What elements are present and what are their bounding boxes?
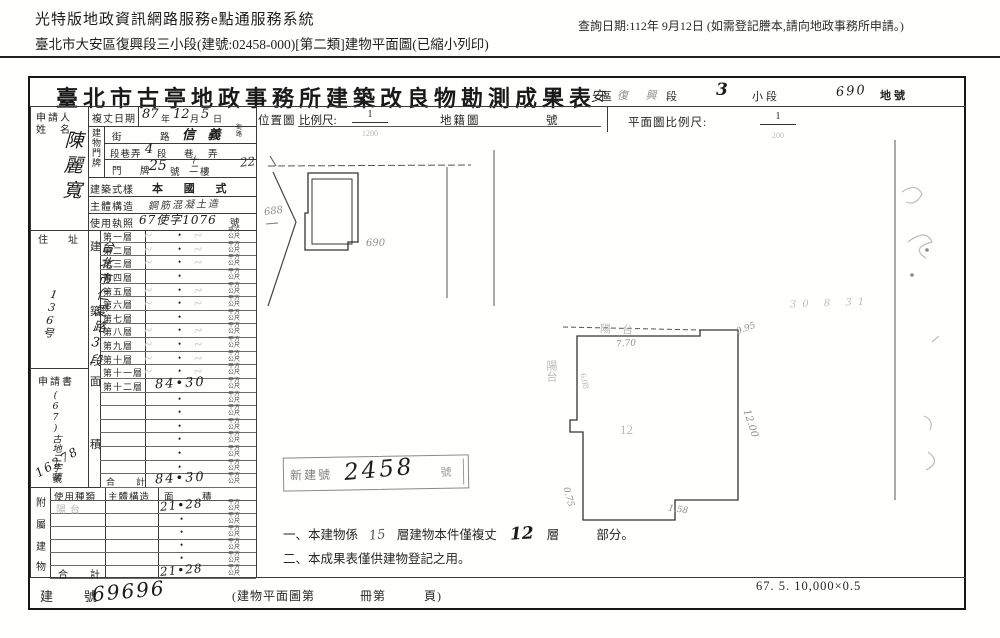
fraction-bar xyxy=(760,124,796,125)
unit-sqm: 公尺 xyxy=(228,426,240,432)
plate-door-label-a: 門 xyxy=(112,163,122,177)
unit-sqm: 公尺 xyxy=(228,533,240,539)
unit-sqm: 公尺 xyxy=(228,453,240,459)
grid-line xyxy=(256,106,257,577)
unit-sqm: 公尺 xyxy=(228,371,240,377)
grid-line xyxy=(88,126,256,127)
plan-dim-top: 7.70 xyxy=(616,338,637,349)
land-district-label: 區 xyxy=(601,88,612,104)
annex-row: •平方公尺 xyxy=(50,526,256,540)
land-subsection-label: 小段 xyxy=(752,88,780,104)
location-map-scale-fraction: 1 1200 xyxy=(352,104,388,141)
floor-area-row: 合 計84•30平方公尺 xyxy=(100,473,256,488)
scale-numerator: 1 xyxy=(776,111,781,122)
scanned-document-page: 光特版地政資訊網路服務e點通服務系統 查詢日期:112年 9月12日 (如需登記… xyxy=(0,0,1000,638)
unit-sqm: 公尺 xyxy=(228,572,240,578)
land-section-value: 復 興 xyxy=(617,87,664,103)
annex-spine-char: 建 xyxy=(36,538,46,553)
building-no-note3: 頁) xyxy=(424,587,442,604)
floor-plan-scale-label: 平面圖比例尺: xyxy=(628,114,707,130)
license-unit: 號 xyxy=(230,215,240,229)
ruled-dot: • xyxy=(178,244,181,254)
location-map-scale-label: 比例尺: xyxy=(299,112,337,128)
floor-plan-scale-fraction: 1 200 xyxy=(760,106,796,143)
unit-sqm: 公尺 xyxy=(228,546,240,552)
form-title: 臺北市古亭地政事務所建築改良物勘測成果表 xyxy=(56,81,596,113)
unit-sqm: 公尺 xyxy=(228,344,240,350)
floor-area-table: 第一層•~~平方公尺第二層•~~平方公尺第三層•~~平方公尺第四層•平方公尺第五… xyxy=(100,228,256,487)
plate-street-unit-bottom: 路 xyxy=(236,133,242,139)
plate-section-label: 段巷弄 xyxy=(110,146,142,160)
application-unit: 號 xyxy=(52,470,62,485)
unit-sqm: 公尺 xyxy=(228,507,240,513)
annex-total-label: 合 計 xyxy=(58,566,106,581)
stamp-number: 2458 xyxy=(343,454,416,486)
unit-sqm: 公尺 xyxy=(228,317,240,323)
floor-label: 合 計 xyxy=(106,475,151,488)
query-date: 查詢日期:112年 9月12日 (如需登記謄本,請向地政事務所申請。) xyxy=(578,17,904,34)
annex-area-value: 21•28 xyxy=(159,561,203,579)
note1-text-c: 層 xyxy=(547,528,560,542)
system-title: 光特版地政資訊網路服務e點通服務系統 xyxy=(35,8,315,29)
ruled-dot: • xyxy=(178,298,181,308)
header-divider xyxy=(0,56,1000,58)
grid-line xyxy=(104,126,105,177)
floor-area-value: 84•30 xyxy=(155,470,206,488)
ruled-dot: • xyxy=(178,407,181,417)
survey-date-year: 87 xyxy=(142,107,159,122)
floor-area-value: 84•30 xyxy=(155,375,206,393)
scale-denominator: 200 xyxy=(772,131,784,140)
plate-street-value: 信 義 xyxy=(182,124,225,143)
cadastral-map-label: 地籍圖 xyxy=(440,112,481,128)
unit-sqm: 公尺 xyxy=(228,480,240,486)
ruled-dot: • xyxy=(178,434,181,444)
note1-text-b: 層建物本件僅複丈 xyxy=(397,528,497,542)
form-print-scale: 67. 5. 10,000×0.5 xyxy=(756,579,861,594)
unit-sqm: 公尺 xyxy=(228,399,240,405)
unit-sqm: 公尺 xyxy=(228,276,240,282)
floor-area-row: 第十二層84•30平方公尺 xyxy=(100,378,256,393)
ruled-dot: • xyxy=(178,230,181,240)
grid-line xyxy=(88,106,89,487)
land-lot-label: 地號 xyxy=(880,87,908,103)
ruled-dot: • xyxy=(178,271,181,281)
floor-area-row: •平方公尺 xyxy=(100,392,256,407)
plate-street-unit-top: 街 xyxy=(236,126,242,132)
survey-date-day: 5 xyxy=(201,107,209,122)
floor-area-row: •平方公尺 xyxy=(100,432,256,447)
annex-row: 陽台21•28平方公尺 xyxy=(50,500,256,514)
floor-area-row: 第三層•~~平方公尺 xyxy=(100,255,256,270)
application-label: 申請書 xyxy=(38,373,74,388)
ruled-dot: • xyxy=(178,285,181,295)
grid-line xyxy=(30,368,88,369)
ruled-dot: • xyxy=(178,257,181,267)
floor-area-row: •平方公尺 xyxy=(100,446,256,461)
ruled-dot: • xyxy=(178,339,181,349)
grid-line xyxy=(138,106,139,126)
plate-floor-value: 十二 xyxy=(186,155,199,175)
land-lot-value: 690 xyxy=(836,83,868,100)
annex-spine-char: 屬 xyxy=(36,516,46,531)
ruled-dot: • xyxy=(178,325,181,335)
annex-spine-char: 附 xyxy=(36,494,46,509)
annex-row: •平方公尺 xyxy=(50,513,256,527)
grid-line xyxy=(104,143,256,144)
fraction-bar xyxy=(352,122,388,123)
survey-date-year-unit: 年 xyxy=(161,112,170,125)
land-subsection-value: 3 xyxy=(716,80,728,100)
ruled-dot: • xyxy=(180,527,183,537)
note-line-2: 二、本成果表僅供建物登記之用。 xyxy=(283,548,471,567)
floor-area-row: 第八層•~~平方公尺 xyxy=(100,323,256,338)
plate-street-label-b: 路 xyxy=(160,129,170,143)
note2-text: 本成果表僅供建物登記之用。 xyxy=(308,552,471,566)
ruled-dot: • xyxy=(178,353,181,363)
annex-spine-char: 物 xyxy=(36,558,46,573)
ruled-dot: • xyxy=(180,553,183,563)
ruled-dot: • xyxy=(178,421,181,431)
floor-area-row: 第九層•~~平方公尺 xyxy=(100,337,256,352)
building-no-stamp: 新建號 2458 號 xyxy=(283,454,470,491)
unit-sqm: 公尺 xyxy=(228,330,240,336)
applicant-name-handwritten: 陳麗寬 xyxy=(56,130,87,241)
unit-sqm: 公尺 xyxy=(228,385,240,391)
floor-area-row: 第五層•~~平方公尺 xyxy=(100,283,256,298)
floor-area-row: 第四層•平方公尺 xyxy=(100,269,256,284)
style-label: 建築式樣 xyxy=(90,181,134,196)
plan-balcony-top-label: 陽 台 xyxy=(600,320,634,337)
survey-date-month: 12 xyxy=(173,107,190,122)
annex-row: •平方公尺 xyxy=(50,539,256,553)
annex-area-table: 陽台21•28平方公尺•平方公尺•平方公尺•平方公尺•平方公尺合 計21•28平… xyxy=(50,500,256,578)
grid-line xyxy=(607,106,608,132)
grid-line xyxy=(30,106,31,577)
unit-sqm: 公尺 xyxy=(228,559,240,565)
application-value: (67)古地二字第 xyxy=(48,390,62,454)
structure-label: 主體構造 xyxy=(90,198,134,213)
residence-label: 住 址 xyxy=(38,231,83,246)
unit-sqm: 公尺 xyxy=(228,262,240,268)
unit-sqm: 公尺 xyxy=(228,235,240,241)
floor-area-row: •平方公尺 xyxy=(100,405,256,420)
map-lot-690: 690 xyxy=(366,238,385,249)
survey-date-label: 複丈日期 xyxy=(92,110,136,125)
plate-street-label-a: 街 xyxy=(112,129,122,143)
unit-sqm: 公尺 xyxy=(228,467,240,473)
style-value: 本 國 式 xyxy=(152,180,236,196)
unit-sqm: 公尺 xyxy=(228,358,240,364)
ruled-dot: • xyxy=(178,448,181,458)
note1-text-a: 本建物係 xyxy=(308,528,358,542)
unit-sqm: 公尺 xyxy=(228,290,240,296)
scale-denominator: 1200 xyxy=(362,129,378,138)
plan-center-mark: 12 xyxy=(620,422,633,438)
plate-floor-unit: 樓 xyxy=(200,164,210,178)
plate-label: 建物門牌 xyxy=(90,128,103,176)
ruled-dot: • xyxy=(178,366,181,376)
plate-alley-unit: 弄 xyxy=(208,146,218,160)
building-no-note1: (建物平面圖第 xyxy=(232,587,315,604)
stamp-line xyxy=(463,458,464,484)
grid-line xyxy=(30,106,966,107)
plate-door-unit: 號 xyxy=(170,164,180,178)
stamp-prefix: 新建號 xyxy=(290,465,332,483)
plate-section-value: 4 xyxy=(145,142,153,157)
ruled-dot: • xyxy=(180,514,183,524)
unit-sqm: 公尺 xyxy=(228,439,240,445)
note1-handwritten-floor: 12 xyxy=(509,523,534,544)
stamp-suffix: 號 xyxy=(440,464,451,480)
note2-no: 二、 xyxy=(283,552,308,566)
note1-text-d: 部分。 xyxy=(596,528,634,542)
note1-handwritten-floors: 15 xyxy=(368,527,386,544)
ruled-dot: • xyxy=(178,394,181,404)
scale-numerator: 1 xyxy=(368,109,373,120)
note1-no: 一、 xyxy=(283,528,308,542)
unit-sqm: 公尺 xyxy=(228,520,240,526)
unit-sqm: 公尺 xyxy=(228,412,240,418)
plate-margin-note: 22 xyxy=(239,154,256,170)
annex-area-value: 21•28 xyxy=(159,496,203,514)
ruled-dot: • xyxy=(180,540,183,550)
location-map-label: 位置圖 xyxy=(258,112,296,128)
annex-row: •平方公尺 xyxy=(50,552,256,566)
plan-balcony-left-label: 陽台 xyxy=(543,360,559,402)
document-subtitle: 臺北市大安區復興段三小段(建號:02458-000)[第二類]建物平面圖(已縮小… xyxy=(35,33,489,53)
floor-area-row: 第一層•~~平方公尺 xyxy=(100,228,256,243)
note-line-1: 一、本建物係 15 層建物本件僅複丈 12 層 部分。 xyxy=(283,524,634,544)
cadastral-no-label: 號 xyxy=(546,112,558,128)
unit-sqm: 公尺 xyxy=(228,249,240,255)
land-section-label: 段 xyxy=(666,88,677,104)
plate-door-value: 25 xyxy=(149,158,167,174)
structure-value: 鋼筋混凝土造 xyxy=(148,195,220,213)
building-no-note2: 冊第 xyxy=(360,587,386,604)
ruled-dot: • xyxy=(178,312,181,322)
unit-sqm: 公尺 xyxy=(228,303,240,309)
floor-area-row: 第六層•~~平方公尺 xyxy=(100,296,256,311)
